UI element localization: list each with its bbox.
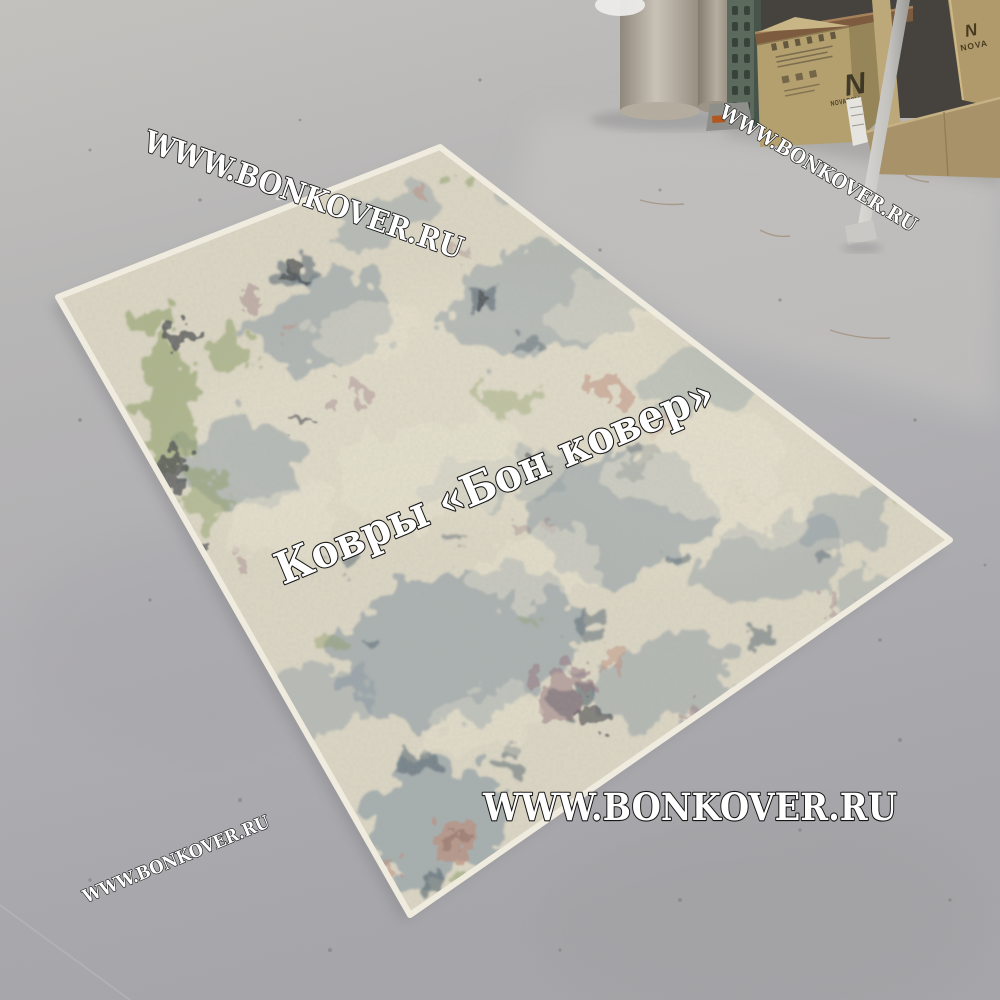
pole-shadow bbox=[842, 243, 882, 253]
carpet-roll-left bbox=[620, 0, 700, 112]
warehouse-rug-photo: N NOVABOLL N NOVA bbox=[0, 0, 1000, 1000]
watermark-bottom-center: WWW.BONKOVER.RU bbox=[482, 785, 897, 829]
